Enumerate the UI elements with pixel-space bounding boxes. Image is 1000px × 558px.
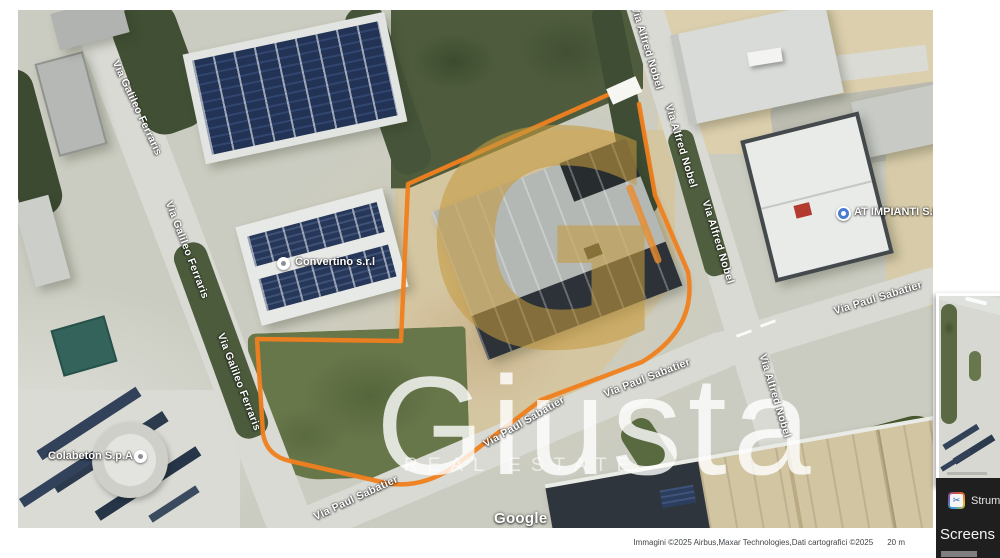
thumb-attribution-line — [947, 472, 987, 475]
satellite-map[interactable]: G Giusta REAL ESTATE Via Galileo Ferrari… — [18, 10, 933, 528]
snipping-tool-icon[interactable]: ✂ — [948, 492, 965, 509]
snipping-tool-panel[interactable]: ✂ Strum Screens — [936, 478, 1000, 558]
poi-label-convertino[interactable]: Convertino s.r.l — [295, 256, 375, 268]
gate-notch — [606, 76, 642, 105]
scale-label: 20 m — [887, 538, 905, 547]
parcel-boundary-line — [257, 93, 690, 484]
poi-label-at-impianti[interactable]: AT IMPIANTI S.R.L — [854, 206, 933, 218]
screenshot-notification-title[interactable]: Screens — [940, 526, 995, 543]
poi-icon-convertino[interactable] — [277, 257, 290, 270]
parcel-boundary — [18, 10, 933, 528]
map-attribution-bar: Immagini ©2025 Airbus,Maxar Technologies… — [0, 538, 933, 547]
snipping-tool-app-label: Strum — [971, 495, 1000, 507]
scissors-glyph: ✂ — [950, 494, 963, 507]
screenshot-root: G Giusta REAL ESTATE Via Galileo Ferrari… — [0, 0, 1000, 558]
attribution-credits: Immagini ©2025 Airbus,Maxar Technologies… — [633, 538, 873, 547]
poi-icon-colabeton[interactable] — [134, 450, 147, 463]
poi-icon-at-impianti[interactable] — [836, 206, 851, 221]
secondary-screenshot-thumbnail[interactable] — [936, 293, 1000, 486]
orange-material-streak — [630, 188, 658, 260]
thumb-tree-strip — [941, 304, 957, 424]
thumb-green-patch — [969, 351, 981, 381]
thumb-pile — [940, 449, 971, 471]
truncated-text-line — [941, 551, 977, 557]
google-logo[interactable]: Google — [494, 510, 547, 527]
poi-label-colabeton[interactable]: Colabeton S.p.A — [48, 450, 133, 462]
